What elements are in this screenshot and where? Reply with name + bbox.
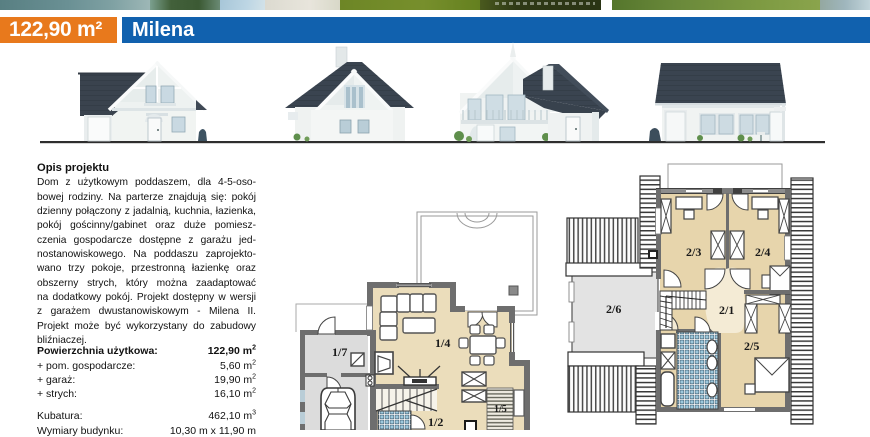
svg-text:1/7: 1/7 bbox=[332, 345, 347, 359]
svg-text:1/5: 1/5 bbox=[494, 404, 507, 415]
svg-text:1/4: 1/4 bbox=[435, 336, 450, 350]
svg-text:1/2: 1/2 bbox=[428, 415, 443, 429]
svg-text:2/1: 2/1 bbox=[719, 303, 734, 317]
svg-text:2/5: 2/5 bbox=[744, 339, 759, 353]
svg-text:2/6: 2/6 bbox=[606, 302, 621, 316]
svg-text:2/3: 2/3 bbox=[686, 245, 701, 259]
svg-text:2/4: 2/4 bbox=[755, 245, 770, 259]
